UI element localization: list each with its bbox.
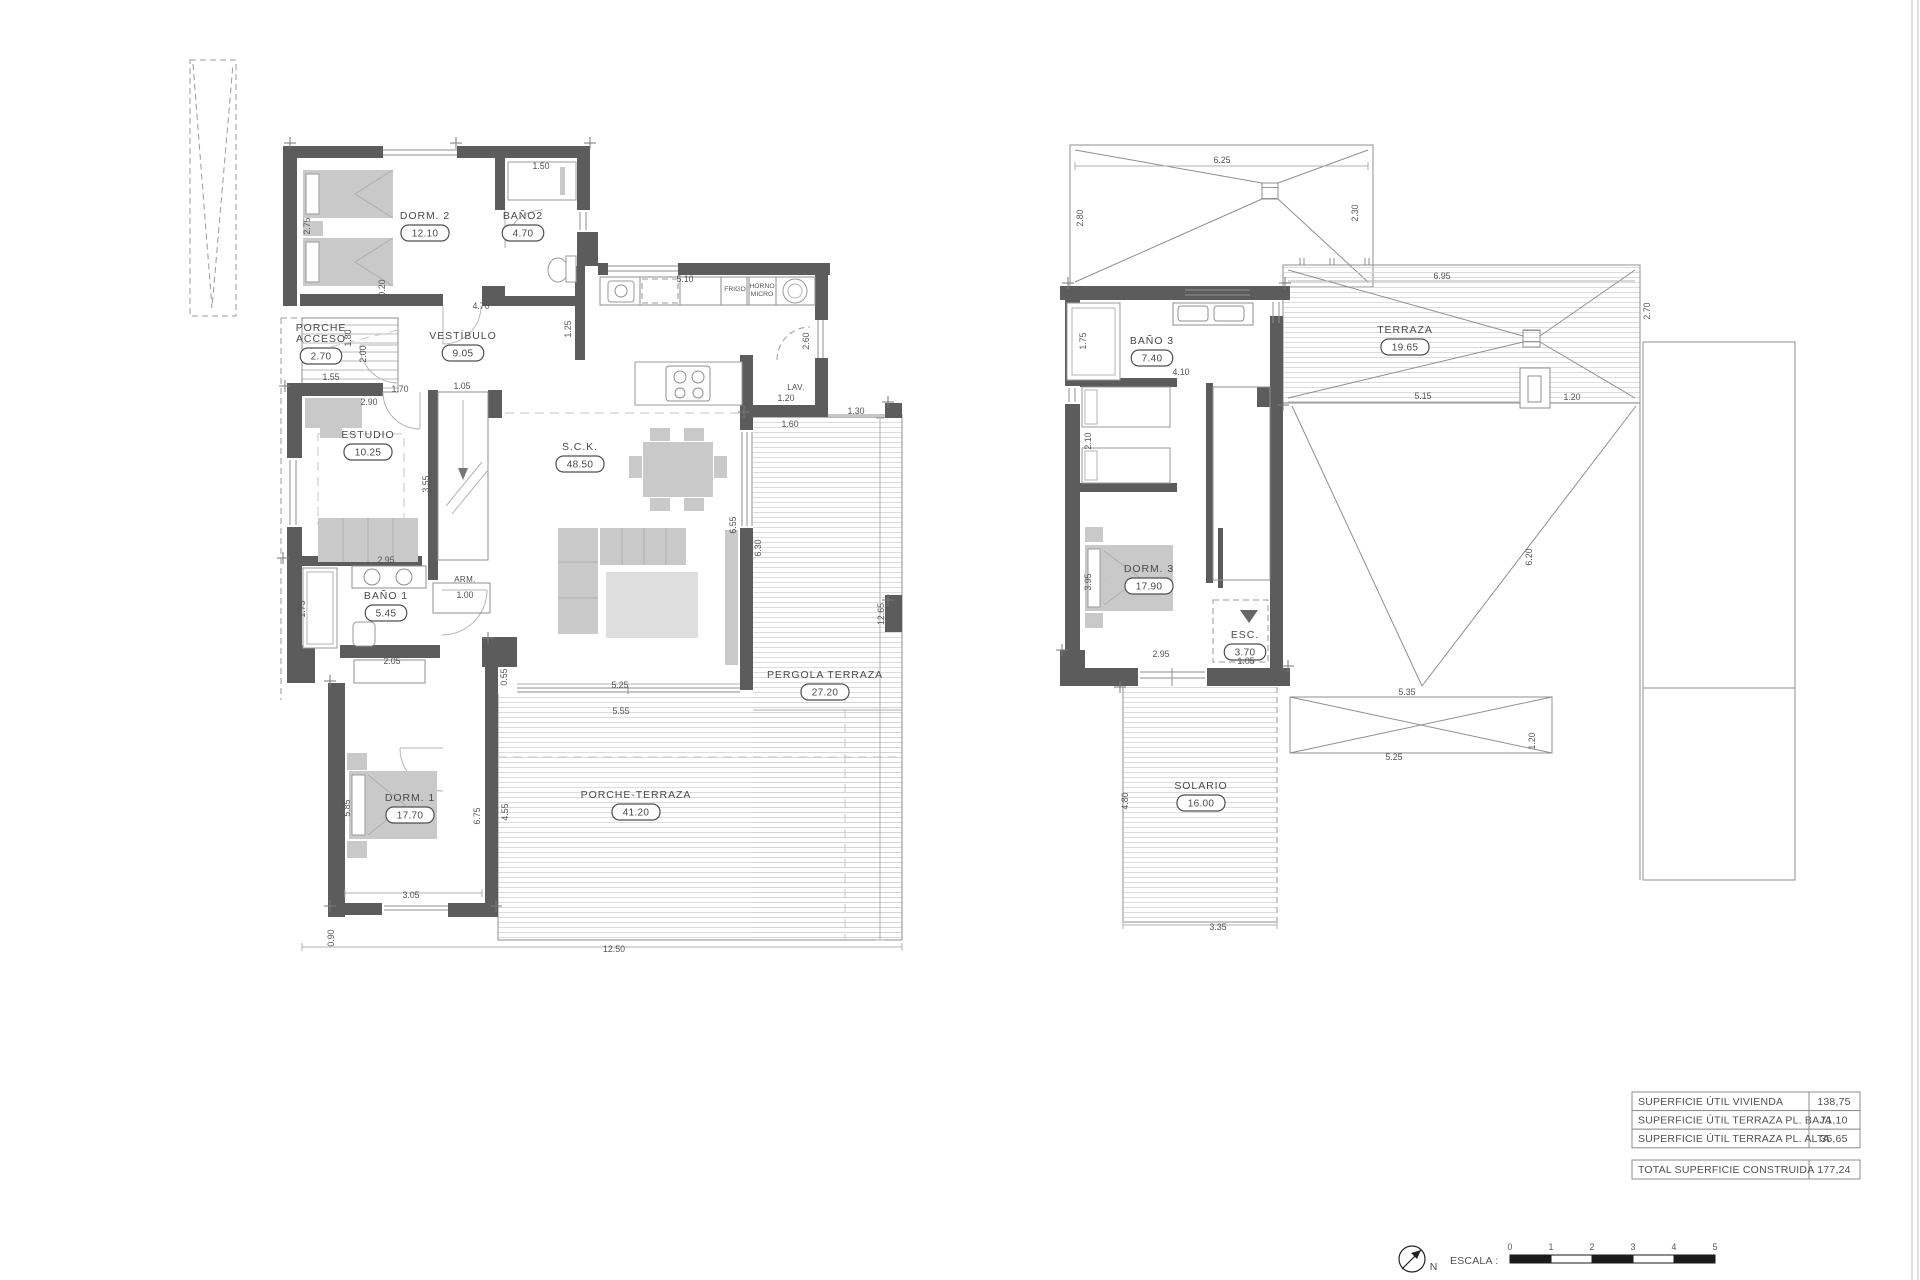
dimension-label: 1.25	[563, 320, 573, 337]
dimension-label: 1.05	[453, 381, 470, 391]
room-label: DORM. 2	[400, 210, 450, 222]
dimension-label: 3.35	[1209, 922, 1226, 932]
sheet-frame	[1912, 0, 1918, 1280]
dimension-label: 5.55	[612, 706, 629, 716]
annotation-label: ARM.	[454, 575, 476, 584]
scale-tick-label: 5	[1713, 1242, 1718, 1252]
dimension-label: 5.35	[1398, 687, 1415, 697]
dimension-label: 2.60	[801, 332, 811, 349]
room-area-value: 17.90	[1136, 582, 1163, 593]
room-area-value: 19.65	[1392, 343, 1419, 354]
north-label: N	[1430, 1261, 1439, 1273]
room-area-value: 17.70	[397, 811, 424, 822]
dimension-label: 2.90	[360, 397, 377, 407]
dimension-label: 3.55	[421, 475, 431, 492]
dimension-label: 5.25	[1385, 752, 1402, 762]
table-row-value: 35,65	[1820, 1133, 1847, 1145]
room-label: ESC.	[1231, 629, 1259, 641]
room-area-value: 16.00	[1188, 799, 1215, 810]
room-label: TERRAZA	[1377, 324, 1433, 336]
north-arrow	[1399, 1246, 1425, 1272]
dimension-label: 2.80	[1075, 209, 1085, 226]
room-label: SOLARIO	[1174, 780, 1227, 792]
table-total-label: TOTAL SUPERFICIE CONSTRUIDA	[1638, 1164, 1814, 1176]
annotation-label: HORNO	[749, 283, 774, 290]
table-row-value: 71,10	[1820, 1115, 1847, 1127]
scale-segment	[1592, 1255, 1633, 1263]
dimension-label: 3.95	[1083, 573, 1093, 590]
dimension-label: 3.05	[402, 890, 419, 900]
room-label: S.C.K.	[562, 441, 598, 453]
porche-terraza-decking	[498, 694, 902, 940]
room-area-value: 9.05	[453, 349, 474, 360]
scale-tick-label: 3	[1631, 1242, 1636, 1252]
room-label: VESTÍBULO	[429, 329, 496, 342]
dimension-label: 6.75	[472, 807, 482, 824]
dimension-label: 4.10	[1172, 367, 1189, 377]
upper-staircase	[1213, 387, 1270, 662]
table-row-value: 138,75	[1817, 1096, 1850, 1108]
dimension-label: 4.55	[500, 803, 510, 820]
room-area-value: 4.70	[513, 229, 534, 240]
scale-tick-label: 1	[1549, 1242, 1554, 1252]
floor-plan-drawing: DORM. 212.10BAÑO24.70PORCHEACCESO2.70VES…	[0, 0, 1920, 1280]
dimension-label: 4.70	[472, 301, 489, 311]
ground-floor-plan	[190, 60, 902, 951]
dimension-label: 1.50	[532, 161, 549, 171]
dimension-label: 2.10	[1083, 432, 1093, 449]
dimension-label: 1.70	[391, 384, 408, 394]
room-label: BAÑO 1	[364, 589, 408, 602]
scale-tick-label: 2	[1590, 1242, 1595, 1252]
floor-plan-sheet: DORM. 212.10BAÑO24.70PORCHEACCESO2.70VES…	[0, 0, 1920, 1280]
dimension-label: 1.75	[1078, 332, 1088, 349]
dimension-label: 6.95	[1433, 271, 1450, 281]
dimension-label: 5.15	[1414, 391, 1431, 401]
dimension-label: 1.05	[1237, 656, 1254, 666]
dimension-label: 2.00	[358, 345, 368, 362]
room-area-value: 27.20	[812, 688, 839, 699]
dimension-label: 12.50	[603, 944, 625, 954]
room-area-value: 7.40	[1142, 354, 1163, 365]
room-label: BAÑO 3	[1130, 334, 1174, 347]
room-area-value: 10.25	[355, 448, 382, 459]
dimension-label: 4.80	[1120, 792, 1130, 809]
scale-tick-label: 0	[1508, 1242, 1513, 1252]
dimension-label: 2.05	[383, 656, 400, 666]
dimension-label: 1.55	[322, 372, 339, 382]
room-label: DORM. 1	[385, 792, 435, 804]
dimension-label: 2.75	[302, 217, 312, 234]
pergola-slat-strip	[1643, 342, 1795, 880]
upper-floor-plan	[1056, 145, 1795, 929]
dimension-label: 2.95	[1152, 649, 1169, 659]
room-label: ACCESO	[296, 333, 346, 345]
dimension-label: 1.00	[456, 590, 473, 600]
dimension-label: 12.65	[876, 603, 886, 625]
annotation-label: MICRO	[751, 291, 774, 298]
room-area-value: 12.10	[412, 229, 439, 240]
table-total-value: 177,24	[1817, 1164, 1850, 1176]
scale-segment	[1510, 1255, 1551, 1263]
dimension-label: 2.30	[1350, 204, 1360, 221]
dimension-label: 5.85	[342, 799, 352, 816]
dimension-label: 2.70	[1642, 302, 1652, 319]
dimension-label: 0.90	[326, 929, 336, 946]
annotation-label: FRIGO	[724, 286, 746, 293]
dimension-label: 1.80	[343, 329, 353, 346]
dimension-label: 1.60	[781, 419, 798, 429]
scale-segment	[1674, 1255, 1715, 1263]
dimension-label: 1.30	[847, 406, 864, 416]
terraza-decking	[1283, 265, 1640, 403]
dimension-label: 2.95	[377, 555, 394, 565]
room-label: PERGOLA TERRAZA	[767, 669, 883, 681]
room-area-value: 41.20	[623, 808, 650, 819]
room-label: PORCHE-TERRAZA	[581, 789, 692, 801]
dimension-label: 5.25	[611, 680, 628, 690]
dimension-label: 1.75	[297, 600, 307, 617]
dimension-label: 1.20	[1563, 392, 1580, 402]
scale-segment	[1633, 1255, 1674, 1263]
scale-segment	[1551, 1255, 1592, 1263]
dimension-label: 6.55	[728, 516, 738, 533]
dimension-label: 6.25	[1213, 155, 1230, 165]
dimension-label: 1.20	[1527, 732, 1537, 749]
scale-tick-label: 4	[1672, 1242, 1677, 1252]
dimension-label: 1.20	[777, 393, 794, 403]
table-row-label: SUPERFICIE ÚTIL TERRAZA PL. BAJA	[1638, 1114, 1832, 1127]
room-label: BAÑO2	[503, 209, 543, 222]
table-row-label: SUPERFICIE ÚTIL VIVIENDA	[1638, 1095, 1783, 1108]
room-label: DORM. 3	[1124, 563, 1174, 575]
dimension-label: 0.55	[499, 668, 509, 685]
dimension-label: 6.20	[1524, 548, 1534, 565]
room-area-value: 48.50	[567, 460, 594, 471]
scale-label: ESCALA :	[1450, 1255, 1498, 1267]
room-label: ESTUDIO	[341, 429, 394, 441]
dimension-label: 5.10	[676, 274, 693, 284]
room-area-value: 5.45	[376, 609, 397, 620]
dimension-label: 0.20	[377, 279, 387, 296]
table-row-label: SUPERFICIE ÚTIL TERRAZA PL. ALTA	[1638, 1132, 1830, 1145]
annotation-label: LAV.	[787, 383, 805, 392]
dimension-label: 6.30	[753, 539, 763, 556]
room-area-value: 2.70	[311, 352, 332, 363]
